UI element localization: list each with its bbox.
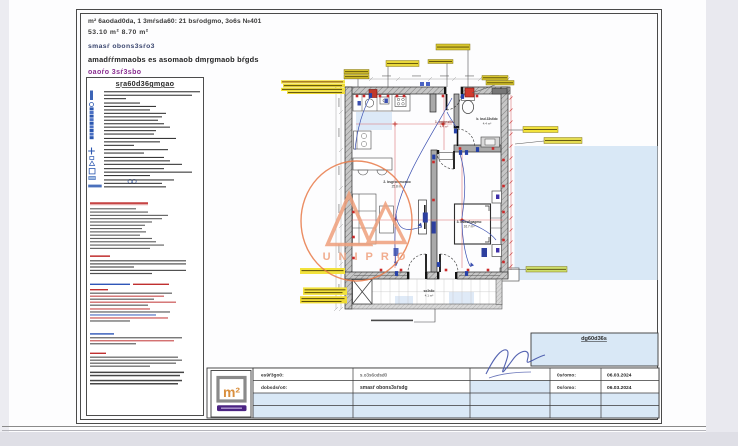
svg-text:4.4 m²: 4.4 m²: [483, 122, 492, 126]
svg-text:dg60d36s: dg60d36s: [581, 336, 607, 342]
svg-text:4.4 m²: 4.4 m²: [440, 125, 449, 129]
svg-text:53.10 m² 8.70 m²: 53.10 m² 8.70 m²: [88, 29, 149, 36]
svg-text:es9ŕ3go0:: es9ŕ3go0:: [261, 373, 284, 379]
svg-text:3. bsdo6gagmo: 3. bsdo6gagmo: [457, 220, 482, 224]
svg-text:sŗa60d36gmgao: sŗa60d36gmgao: [116, 79, 175, 88]
svg-text:4.1 m²: 4.1 m²: [425, 294, 434, 298]
svg-text:dobsdsŕo0:: dobsdsŕo0:: [261, 385, 288, 391]
svg-text:06.03.2024: 06.03.2024: [607, 373, 632, 379]
svg-text:1. egŕgns6o: 1. egŕgns6o: [435, 120, 453, 124]
svg-text:smasŕ obons3sŕsdg: smasŕ obons3sŕsdg: [360, 385, 408, 391]
svg-text:smasŕ obons3sŕo3: smasŕ obons3sŕo3: [88, 43, 155, 50]
svg-text:UNIPRO: UNIPRO: [323, 251, 414, 263]
svg-text:m²: m²: [223, 384, 240, 400]
svg-text:0sŕomo:: 0sŕomo:: [557, 385, 576, 391]
svg-text:oaoŕo 3sŕ3sbo: oaoŕo 3sŕ3sbo: [88, 69, 141, 76]
svg-text:so3s6o: so3s6o: [424, 289, 435, 293]
svg-text:16.7 m²: 16.7 m²: [464, 225, 475, 229]
svg-text:0sŕomo:: 0sŕomo:: [557, 373, 576, 379]
svg-text:m² 6aodad0da, 1 3mŕsda60: 21 b: m² 6aodad0da, 1 3mŕsda60: 21 bsŕodgmo, 3…: [88, 18, 262, 25]
svg-text:b. bsd.33s6do: b. bsd.33s6do: [476, 117, 497, 121]
svg-text:06.03.2024: 06.03.2024: [607, 385, 632, 391]
svg-text:amadŕŕmmaobs es asomaob dmŗgma: amadŕŕmmaobs es asomaob dmŗgmaob bŕgds: [88, 55, 259, 64]
svg-text:s.o3s6odsd0: s.o3s6odsd0: [360, 373, 388, 379]
